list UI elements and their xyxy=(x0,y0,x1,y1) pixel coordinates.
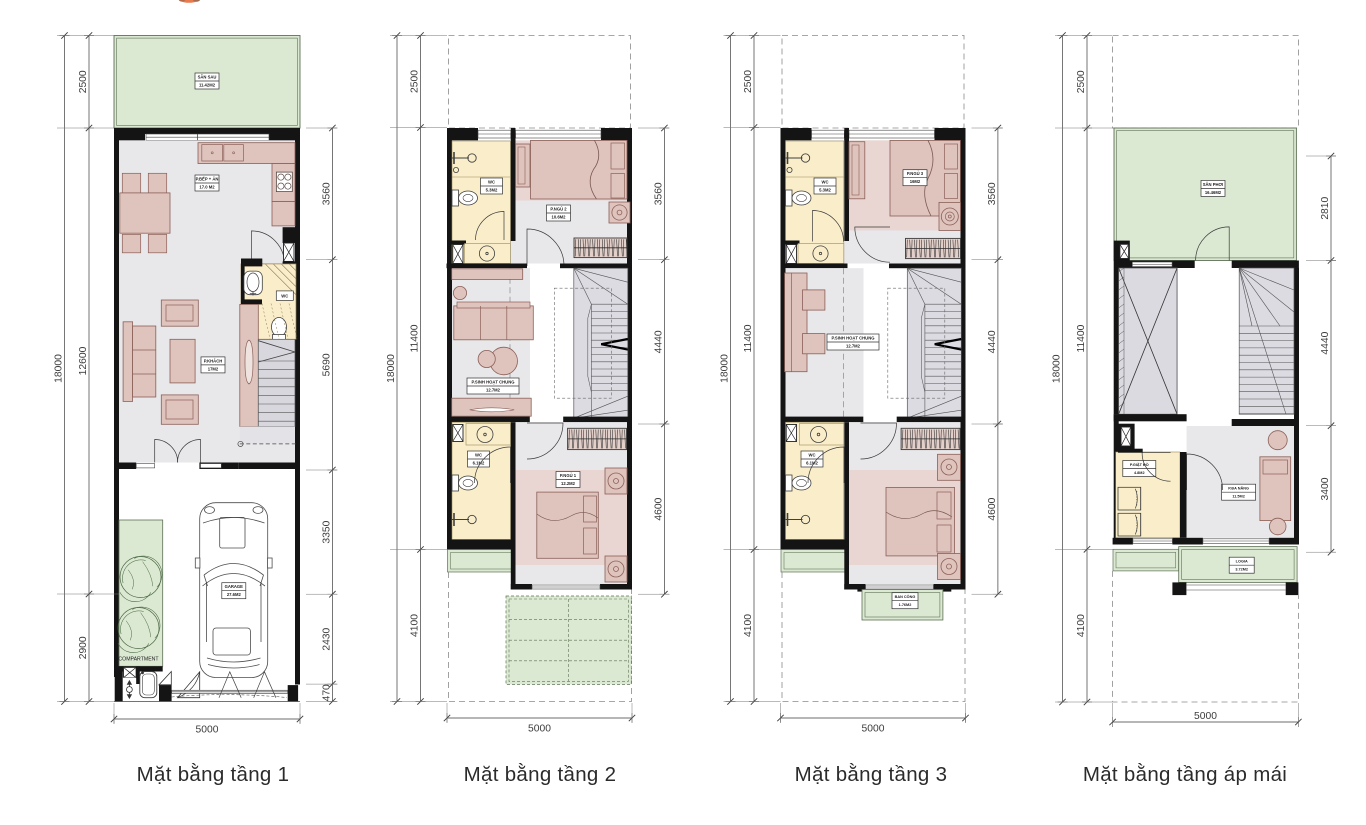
svg-text:WC: WC xyxy=(281,293,288,298)
svg-text:4100: 4100 xyxy=(1076,614,1087,637)
svg-text:4100: 4100 xyxy=(743,614,754,637)
svg-text:3560: 3560 xyxy=(987,182,998,205)
svg-text:WC: WC xyxy=(488,179,495,184)
svg-text:2430: 2430 xyxy=(321,627,332,650)
svg-text:3.72M2: 3.72M2 xyxy=(1235,568,1248,572)
svg-text:12.7M2: 12.7M2 xyxy=(846,343,861,348)
svg-text:2500: 2500 xyxy=(78,70,89,93)
svg-text:11.42M2: 11.42M2 xyxy=(199,82,216,87)
svg-text:18000: 18000 xyxy=(1052,354,1063,383)
svg-text:P.NGỦ 1: P.NGỦ 1 xyxy=(560,473,577,478)
svg-text:16.46M2: 16.46M2 xyxy=(1205,190,1222,195)
svg-text:Mặt bằng tầng 2: Mặt bằng tầng 2 xyxy=(464,763,617,786)
svg-text:WC: WC xyxy=(822,179,829,184)
svg-text:3400: 3400 xyxy=(1320,477,1331,500)
svg-text:11400: 11400 xyxy=(410,324,421,352)
svg-text:5000: 5000 xyxy=(528,724,551,735)
svg-text:3560: 3560 xyxy=(321,182,332,205)
svg-text:12.2M2: 12.2M2 xyxy=(561,481,576,486)
svg-text:2500: 2500 xyxy=(410,70,421,93)
svg-text:4600: 4600 xyxy=(653,497,664,520)
svg-text:5.3M2: 5.3M2 xyxy=(486,187,498,192)
svg-text:5000: 5000 xyxy=(1194,711,1217,722)
svg-text:P.SINH HOẠT CHUNG: P.SINH HOẠT CHUNG xyxy=(832,335,875,340)
svg-text:6.1M2: 6.1M2 xyxy=(806,460,818,465)
svg-text:2810: 2810 xyxy=(1320,196,1331,219)
svg-text:P.KHÁCH: P.KHÁCH xyxy=(204,358,223,363)
svg-text:P.ĐA NĂNG: P.ĐA NĂNG xyxy=(1228,486,1249,491)
svg-text:COMPARTMENT: COMPARTMENT xyxy=(118,657,159,663)
svg-text:4100: 4100 xyxy=(410,614,421,637)
svg-text:6.1M2: 6.1M2 xyxy=(473,460,485,465)
svg-text:P.BẾP + ĂN: P.BẾP + ĂN xyxy=(196,176,219,181)
svg-text:P.NGỦ 2: P.NGỦ 2 xyxy=(550,206,567,211)
svg-text:Mặt bằng tầng 3: Mặt bằng tầng 3 xyxy=(795,763,948,786)
svg-text:P.GIẶT ĐỒ: P.GIẶT ĐỒ xyxy=(1130,462,1149,467)
svg-text:18000: 18000 xyxy=(720,354,731,383)
svg-text:5.3M2: 5.3M2 xyxy=(819,187,831,192)
svg-text:16M2: 16M2 xyxy=(910,179,921,184)
svg-text:11400: 11400 xyxy=(743,324,754,352)
svg-text:18000: 18000 xyxy=(54,354,65,383)
svg-text:1.76M2: 1.76M2 xyxy=(899,603,912,607)
svg-text:SÂN SAU: SÂN SAU xyxy=(198,74,217,79)
svg-text:11400: 11400 xyxy=(1076,324,1087,352)
svg-text:2500: 2500 xyxy=(1076,70,1087,93)
svg-text:470: 470 xyxy=(321,684,332,701)
svg-text:17M2: 17M2 xyxy=(208,366,219,371)
svg-text:GARAGE: GARAGE xyxy=(225,584,244,589)
svg-text:4440: 4440 xyxy=(987,330,998,353)
svg-text:Mặt bằng tầng 1: Mặt bằng tầng 1 xyxy=(137,763,290,786)
svg-text:27.6M2: 27.6M2 xyxy=(227,592,242,597)
svg-text:4.8M2: 4.8M2 xyxy=(1134,471,1145,475)
svg-text:2900: 2900 xyxy=(78,636,89,659)
svg-text:2500: 2500 xyxy=(743,70,754,93)
svg-text:P.NGỦ 3: P.NGỦ 3 xyxy=(907,171,924,176)
svg-text:10.6M2: 10.6M2 xyxy=(552,214,567,219)
svg-text:WC: WC xyxy=(809,452,816,457)
svg-text:17.0 M2: 17.0 M2 xyxy=(199,184,215,189)
svg-text:WC: WC xyxy=(475,452,482,457)
svg-text:4600: 4600 xyxy=(987,497,998,520)
svg-text:4440: 4440 xyxy=(653,330,664,353)
svg-text:11.5M2: 11.5M2 xyxy=(1232,495,1244,499)
svg-text:3560: 3560 xyxy=(653,182,664,205)
svg-text:5000: 5000 xyxy=(862,724,885,735)
svg-text:BAN CÔNG: BAN CÔNG xyxy=(895,594,916,599)
svg-text:Mặt bằng tầng áp mái: Mặt bằng tầng áp mái xyxy=(1083,763,1287,786)
svg-text:18000: 18000 xyxy=(386,354,397,383)
svg-text:5000: 5000 xyxy=(196,725,219,736)
svg-text:P.SINH HOẠT CHUNG: P.SINH HOẠT CHUNG xyxy=(472,379,515,384)
svg-text:5690: 5690 xyxy=(321,353,332,376)
svg-text:3350: 3350 xyxy=(321,520,332,543)
svg-text:SÂN PHƠI: SÂN PHƠI xyxy=(1203,182,1224,187)
svg-text:12600: 12600 xyxy=(78,346,89,375)
svg-text:4440: 4440 xyxy=(1320,331,1331,354)
svg-text:12.7M2: 12.7M2 xyxy=(486,387,501,392)
svg-text:LOGIA: LOGIA xyxy=(1236,560,1248,564)
